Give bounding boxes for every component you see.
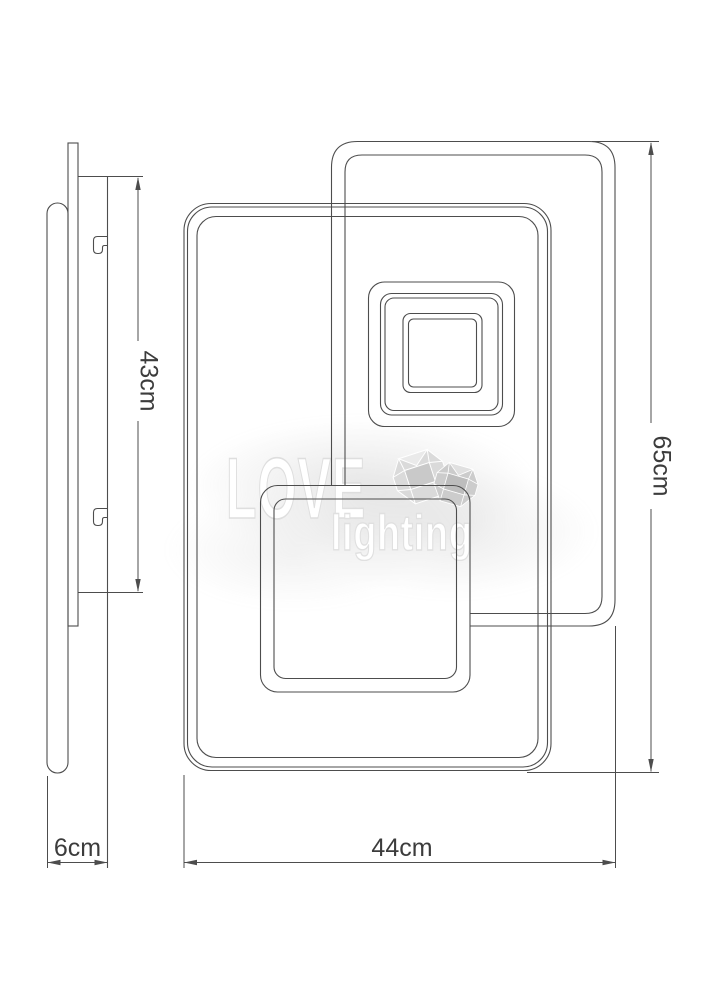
dim-label-6cm: 6cm [54, 834, 101, 862]
back-frame [332, 142, 616, 627]
drawing-canvas: 43cm 6cm 65cm 44cm [0, 0, 707, 1000]
front-view [184, 142, 615, 771]
dim-label-44cm: 44cm [371, 834, 432, 862]
spring-clip-bottom [94, 509, 108, 526]
dimension-65cm: 65cm [527, 142, 676, 773]
dim-label-43cm: 43cm [135, 350, 163, 411]
dimension-43cm: 43cm [128, 177, 163, 592]
front-frame [184, 204, 551, 771]
mounting-plate [68, 143, 78, 626]
side-view [47, 143, 143, 868]
side-panel-profile [47, 203, 68, 773]
small-square-frame [369, 282, 515, 427]
dimension-6cm: 6cm [48, 776, 108, 868]
center-square [403, 314, 482, 393]
spring-clip-top [94, 237, 108, 254]
dim-label-65cm: 65cm [648, 435, 676, 496]
medium-square-frame [261, 486, 471, 693]
technical-drawing-page: LOVE lighting [0, 0, 707, 1000]
